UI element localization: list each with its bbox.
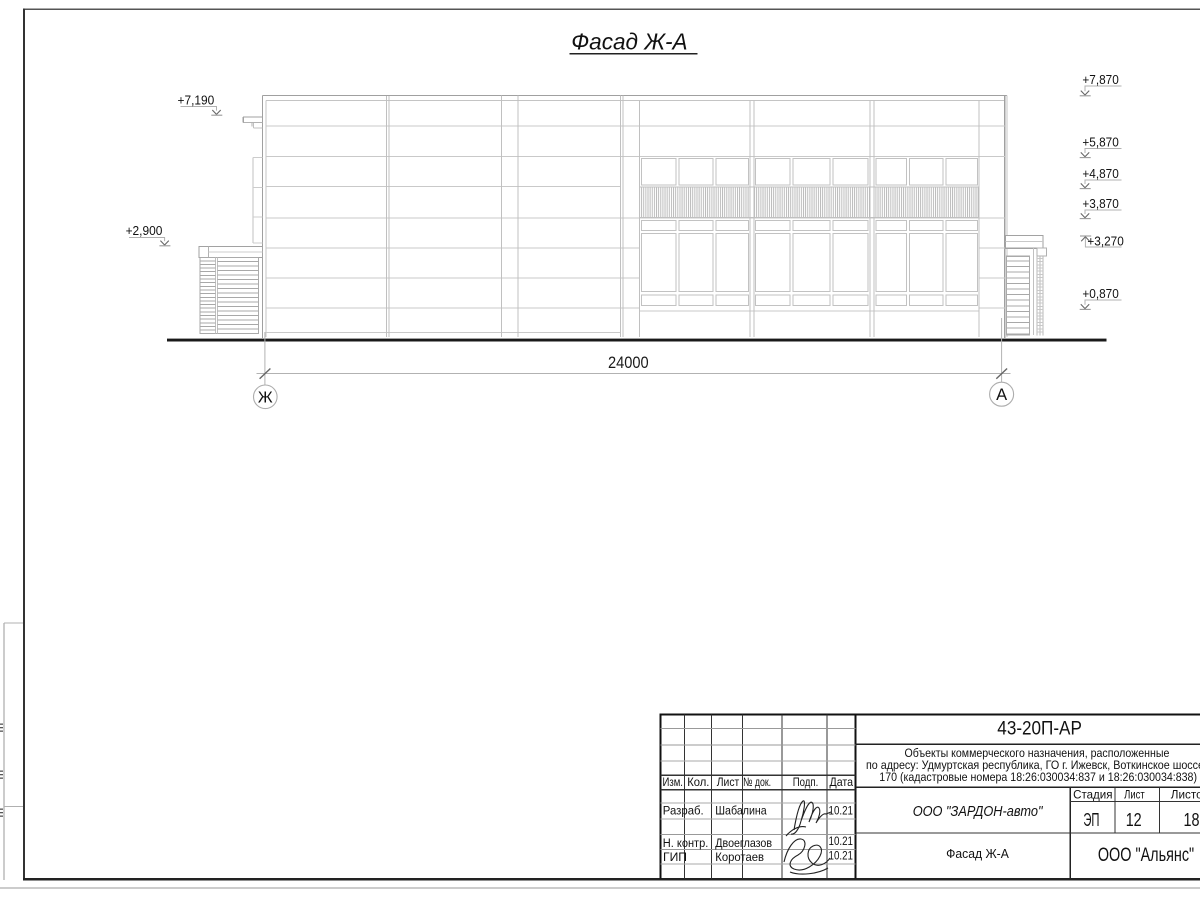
svg-text:10.21: 10.21	[829, 834, 854, 848]
svg-text:№ док.: № док.	[743, 775, 771, 789]
svg-text:Лист: Лист	[1124, 788, 1145, 802]
svg-text:Двоеглазов: Двоеглазов	[715, 836, 772, 850]
svg-text:+4,870: +4,870	[1082, 167, 1118, 181]
svg-text:ООО "ЗАРДОН-авто": ООО "ЗАРДОН-авто"	[913, 803, 1043, 820]
svg-text:Шабалина: Шабалина	[715, 804, 767, 818]
svg-text:+5,870: +5,870	[1082, 135, 1118, 149]
svg-text:18: 18	[1184, 810, 1200, 830]
svg-text:ЭП: ЭП	[1083, 810, 1099, 830]
svg-text:Ж: Ж	[258, 390, 273, 407]
svg-text:10.21: 10.21	[829, 804, 854, 818]
svg-text:Кол.: Кол.	[687, 775, 709, 789]
svg-text:Фасад Ж-А: Фасад Ж-А	[571, 29, 687, 55]
svg-text:Изм.: Изм.	[662, 775, 683, 789]
svg-text:Фасад Ж-А: Фасад Ж-А	[946, 847, 1009, 861]
svg-text:Листов: Листов	[1171, 788, 1200, 802]
svg-text:ГИП: ГИП	[663, 850, 687, 864]
svg-text:24000: 24000	[608, 353, 649, 372]
svg-text:Лист: Лист	[717, 775, 740, 789]
svg-text:Стадия: Стадия	[1073, 788, 1112, 802]
svg-text:Н. контр.: Н. контр.	[663, 836, 709, 850]
svg-text:43-20П-АР: 43-20П-АР	[997, 719, 1082, 740]
svg-text:А: А	[996, 386, 1007, 404]
svg-text:+2,900: +2,900	[126, 224, 163, 238]
svg-text:Дата: Дата	[830, 775, 854, 789]
svg-text:Подп.: Подп.	[793, 775, 819, 789]
svg-text:+3,870: +3,870	[1082, 197, 1118, 211]
svg-text:+7,190: +7,190	[178, 93, 215, 107]
svg-text:10.21: 10.21	[829, 849, 854, 863]
svg-text:12: 12	[1126, 810, 1142, 830]
svg-text:+3,270: +3,270	[1087, 235, 1123, 249]
svg-text:170 (кадастровые номера 18:26:: 170 (кадастровые номера 18:26:030034:837…	[879, 770, 1197, 784]
svg-text:Разраб.: Разраб.	[663, 804, 704, 818]
svg-text:+7,870: +7,870	[1082, 73, 1118, 87]
svg-text:ООО "Альянс": ООО "Альянс"	[1098, 845, 1194, 866]
svg-text:+0,870: +0,870	[1082, 287, 1118, 301]
svg-text:Коротаев: Коротаев	[715, 850, 764, 864]
